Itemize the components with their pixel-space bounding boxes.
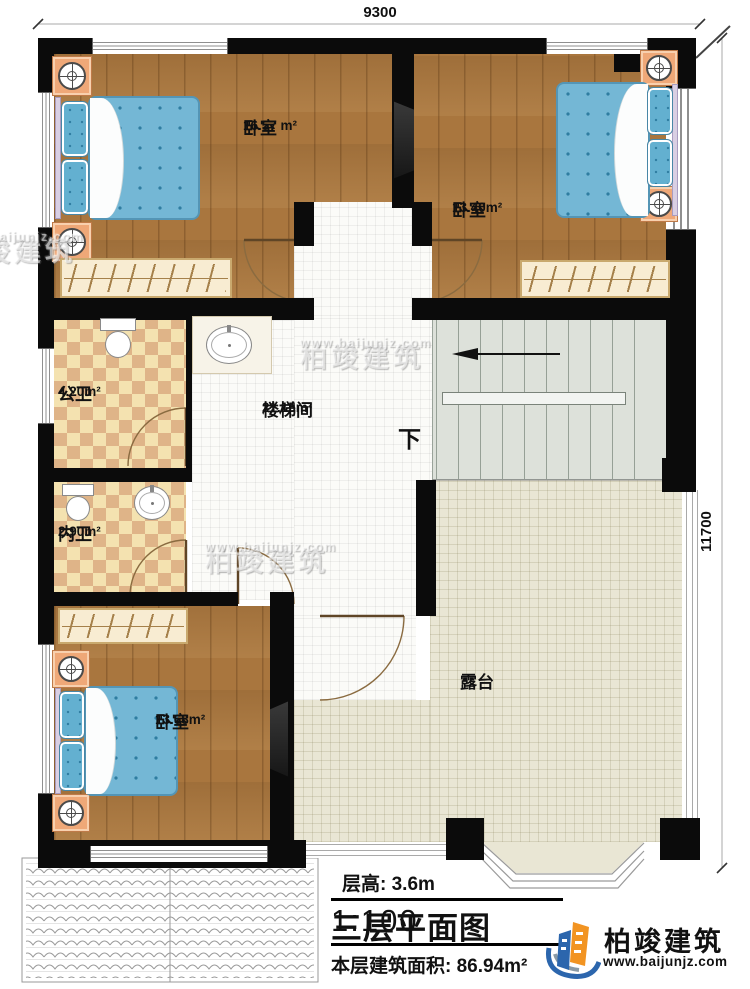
pillow: [62, 160, 88, 214]
floor-plan-page: 卧室16.57 m² 卧室13.40m² 公卫4.20m² 楼梯间21.15m²…: [0, 0, 750, 989]
stair-down-label: 下: [398, 420, 421, 454]
sink-icon: [134, 486, 170, 520]
window: [38, 348, 54, 424]
toilet-icon: [100, 318, 136, 331]
brand-logo-icon: [545, 912, 601, 980]
column: [660, 818, 700, 860]
title-rule-bottom: [331, 943, 563, 946]
pillow: [60, 742, 84, 790]
wall-bedroom-tr-south: [432, 298, 666, 320]
plan-scale: 1:100: [331, 903, 419, 939]
dimension-top: 9300: [350, 4, 410, 21]
lamp-icon: [58, 800, 84, 826]
wall-segment: [294, 202, 314, 246]
window: [90, 846, 268, 862]
column: [662, 458, 696, 492]
pillow: [648, 140, 672, 186]
lamp-icon: [58, 62, 86, 90]
brand-site: www.baijunjz.com: [603, 954, 728, 969]
tv-icon: [394, 100, 414, 180]
floor-height-label: 层高: 3.6m: [342, 869, 435, 896]
floor-area-label: 本层建筑面积: 86.94m²: [331, 951, 527, 978]
window: [92, 38, 228, 54]
terrace-railing-bottom: [296, 842, 446, 858]
pillow: [60, 692, 84, 738]
pillow: [62, 102, 88, 156]
wardrobe: [520, 260, 670, 298]
tv-icon: [270, 700, 288, 778]
dimension-right: 11700: [698, 462, 715, 552]
lamp-icon: [58, 228, 86, 256]
lamp-icon: [646, 55, 672, 81]
toilet-icon: [62, 484, 94, 496]
wall-segment: [412, 298, 432, 320]
window: [38, 92, 54, 228]
bed-headboard: [55, 97, 61, 219]
toilet-bowl: [66, 496, 90, 521]
wall-segment: [412, 202, 432, 246]
pillow: [648, 88, 672, 134]
bed-headboard: [672, 84, 678, 216]
wall-segment: [270, 592, 294, 606]
wardrobe: [60, 258, 232, 298]
wall-hall-terrace: [416, 480, 436, 616]
toilet-bowl: [105, 331, 131, 358]
wall-segment: [186, 592, 238, 606]
window: [546, 38, 648, 54]
sink-icon: [206, 326, 252, 364]
column: [446, 818, 484, 860]
wardrobe: [58, 608, 188, 644]
lamp-icon: [58, 656, 84, 682]
wall-bath-split: [54, 468, 192, 482]
title-rule-top: [331, 898, 563, 901]
wall-inner-bath-south: [54, 592, 192, 606]
wall-segment: [294, 298, 314, 320]
